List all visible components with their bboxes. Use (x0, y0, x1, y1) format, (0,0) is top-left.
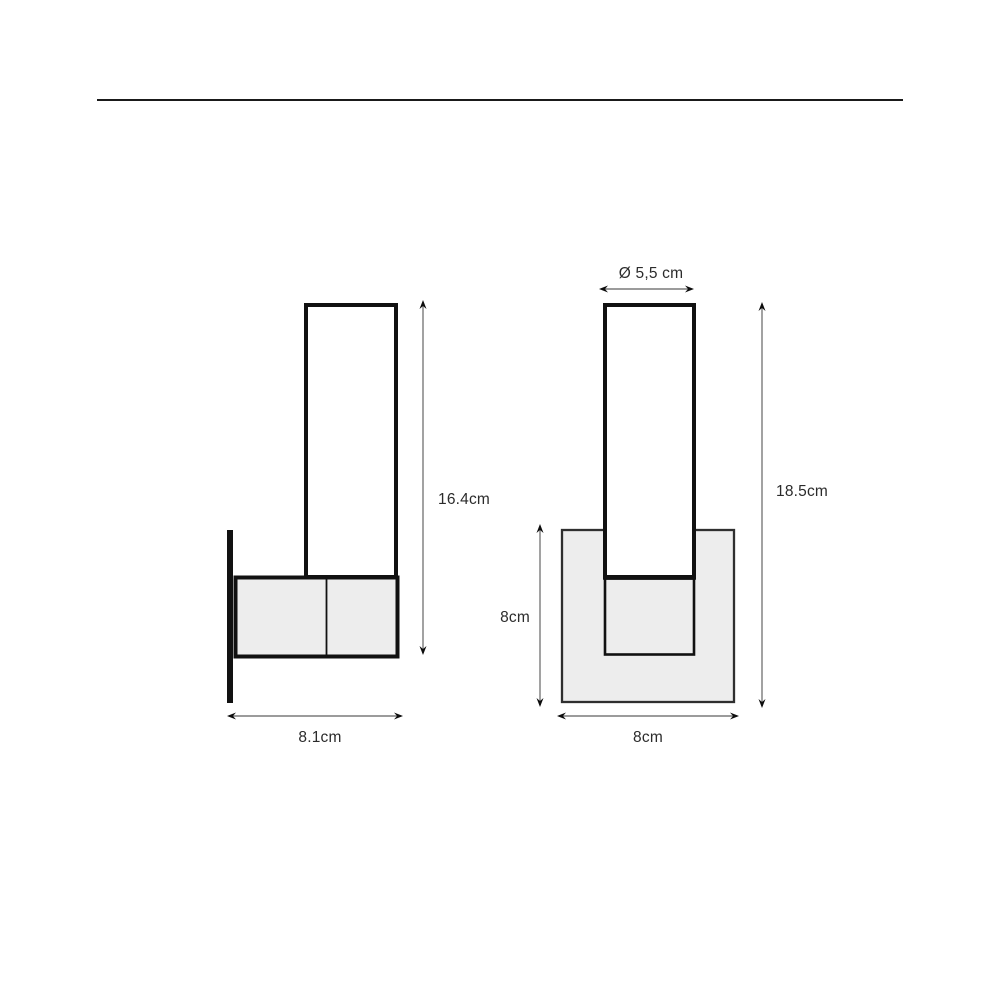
lamp-tube-front (605, 305, 694, 577)
plate-width-label: 8cm (633, 729, 663, 746)
side-height-label: 16.4cm (438, 491, 490, 508)
wall-plate-side (227, 530, 233, 703)
side-view-drawing (227, 305, 398, 703)
lamp-tube-side (306, 305, 396, 577)
side-width-label: 8.1cm (298, 729, 341, 746)
plate-height-label: 8cm (500, 609, 530, 626)
front-height-label: 18.5cm (776, 483, 828, 500)
front-view-drawing (562, 305, 734, 702)
diagram-svg: 16.4cm 8.1cm Ø 5,5 cm 18.5cm 8cm (0, 0, 1000, 1000)
product-dimension-diagram: 16.4cm 8.1cm Ø 5,5 cm 18.5cm 8cm (0, 0, 1000, 1000)
mount-bracket-side (236, 578, 398, 657)
front-diameter-label: Ø 5,5 cm (619, 265, 683, 282)
bracket-front (605, 579, 694, 655)
